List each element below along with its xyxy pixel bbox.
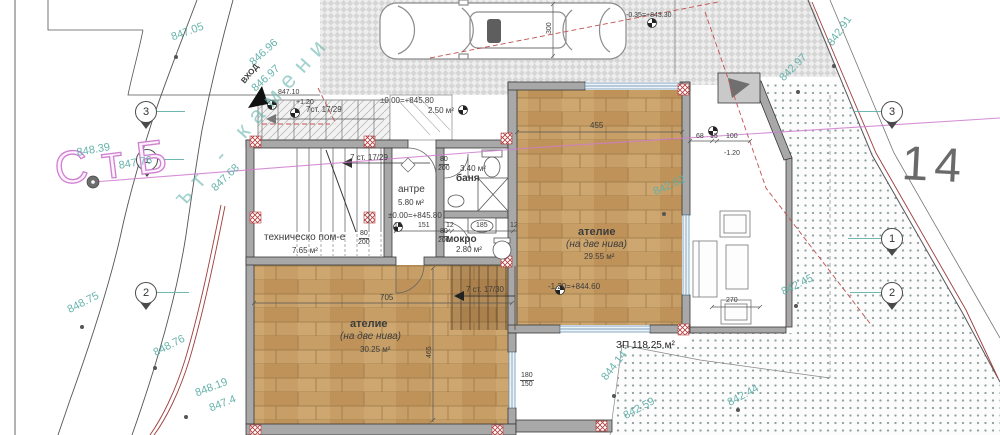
room-area-mokro: 2.80 м²: [456, 246, 482, 254]
porch-level: ±0.00=+845.80: [380, 97, 434, 105]
boundary-marker-3: 3: [881, 101, 903, 123]
room-sub-atelier-right: (на две нива): [566, 240, 627, 250]
dim-15: 15: [710, 133, 718, 140]
boundary-marker-2: 2: [881, 282, 903, 304]
mirror: [459, 0, 468, 5]
room-level-antre: ±0.00=+845.80: [388, 212, 442, 220]
exterior-stair-label: 7ст. 17/29: [306, 106, 342, 114]
dim-465: 465: [426, 346, 433, 358]
lower-stair-label: 7 ст. 17/30: [466, 286, 504, 294]
room-area-atelier-lower: 30.25 м²: [360, 346, 390, 354]
room-name-atelier-lower: ателие: [350, 319, 388, 330]
porch-top-elevation: 847.10: [278, 89, 299, 96]
parcel-number: 14: [900, 140, 968, 191]
site-plan: СтБ ът - камени 14 847.05 846.96 846.97 …: [0, 0, 1000, 435]
dim-12: 12: [394, 222, 402, 229]
room-area-antre: 5.80 м²: [398, 199, 424, 207]
marker-leader: [157, 292, 189, 293]
boundary-marker-3: 3: [135, 101, 157, 123]
room-area-atelier-right: 29.55 м²: [584, 253, 614, 261]
dim-300: 300: [546, 22, 553, 34]
boundary-marker-2: 2: [135, 282, 157, 304]
window-size-label: 180 150: [520, 372, 534, 389]
toilet-bowl: [484, 157, 500, 177]
room-level-atelier-right: -1.20=+844.60: [548, 283, 600, 291]
plan-drawing: [0, 0, 1000, 435]
door-size-label: 80 200: [358, 230, 370, 247]
car: [380, 0, 626, 59]
dim-270: 270: [726, 297, 738, 304]
room-area-banya: 3.40 м²: [460, 165, 486, 173]
sink: [448, 195, 464, 207]
dim-12: 12: [510, 222, 518, 229]
main-stair-label: 7 ст. 17/29: [350, 154, 388, 162]
dim-705: 705: [380, 294, 393, 302]
sunroof: [487, 19, 501, 43]
dim-151: 151: [418, 222, 430, 229]
door-size-label: 80 200: [438, 228, 450, 245]
dim-68: 68: [696, 133, 704, 140]
mirror: [459, 54, 468, 59]
marker-leader: [854, 111, 881, 112]
room-name-tech: техническо пом-е: [264, 233, 345, 243]
dim-455: 455: [590, 122, 603, 130]
parking-level: -0.35=+843.30: [626, 12, 672, 19]
porch-area: 2.50 м²: [428, 107, 454, 115]
door-size-label: 80 200: [438, 156, 450, 173]
dim-neg120: -1.20: [724, 150, 740, 157]
room-name-mokro: мокро: [446, 235, 477, 245]
room-sub-atelier-lower: (на две нива): [340, 332, 401, 342]
room-name-atelier-right: ателие: [578, 227, 616, 238]
boundary-marker-1: 1: [881, 228, 903, 250]
dim-185: 185: [476, 222, 488, 229]
room-area-tech: 7.65 м²: [292, 247, 318, 255]
dim-100: 100: [726, 133, 738, 140]
marker-leader: [157, 111, 185, 112]
built-area-label: ЗП 118.25 м²: [616, 341, 675, 351]
room-name-antre: антре: [398, 185, 425, 195]
marker-leader: [850, 292, 881, 293]
wc-bowl: [493, 241, 511, 259]
marker-leader: [848, 238, 881, 239]
room-name-banya: баня: [456, 174, 480, 184]
